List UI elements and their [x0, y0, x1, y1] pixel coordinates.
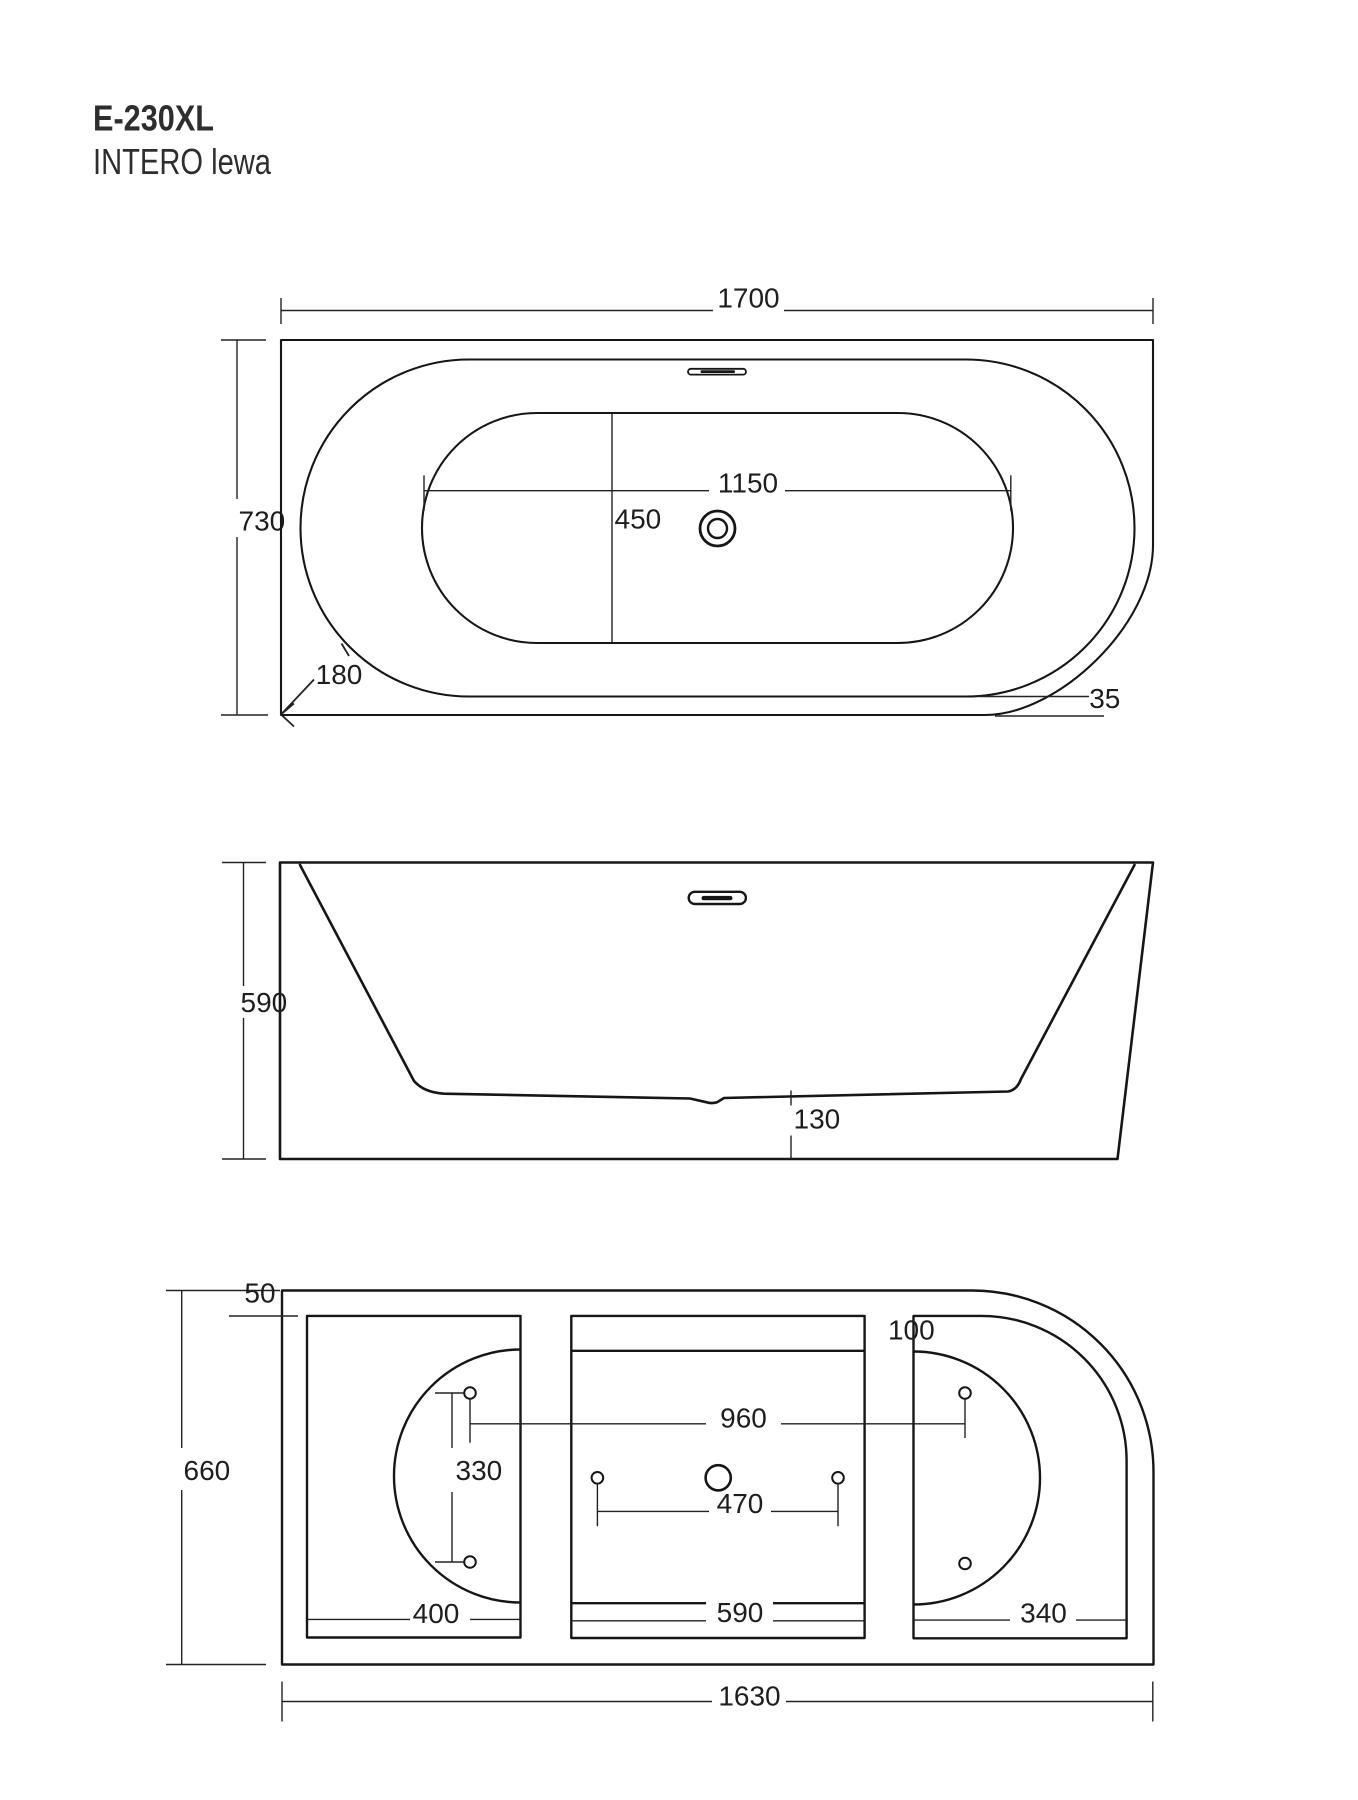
svg-text:590: 590	[717, 1597, 764, 1628]
svg-text:960: 960	[720, 1403, 767, 1434]
svg-text:35: 35	[1089, 683, 1120, 714]
svg-text:340: 340	[1020, 1598, 1067, 1629]
svg-text:180: 180	[316, 659, 363, 690]
svg-text:1630: 1630	[718, 1681, 780, 1712]
svg-text:400: 400	[413, 1598, 460, 1629]
svg-text:450: 450	[615, 504, 662, 535]
svg-text:660: 660	[184, 1455, 231, 1486]
svg-text:INTERO lewa: INTERO lewa	[93, 141, 272, 182]
svg-text:730: 730	[239, 506, 286, 537]
svg-text:470: 470	[717, 1488, 764, 1519]
svg-text:100: 100	[888, 1315, 935, 1346]
svg-text:E-230XL: E-230XL	[93, 98, 214, 139]
svg-text:590: 590	[241, 987, 288, 1018]
svg-text:330: 330	[456, 1455, 503, 1486]
svg-text:1150: 1150	[718, 468, 778, 499]
svg-text:1700: 1700	[717, 283, 779, 314]
svg-text:130: 130	[794, 1104, 841, 1135]
svg-text:50: 50	[244, 1278, 275, 1309]
